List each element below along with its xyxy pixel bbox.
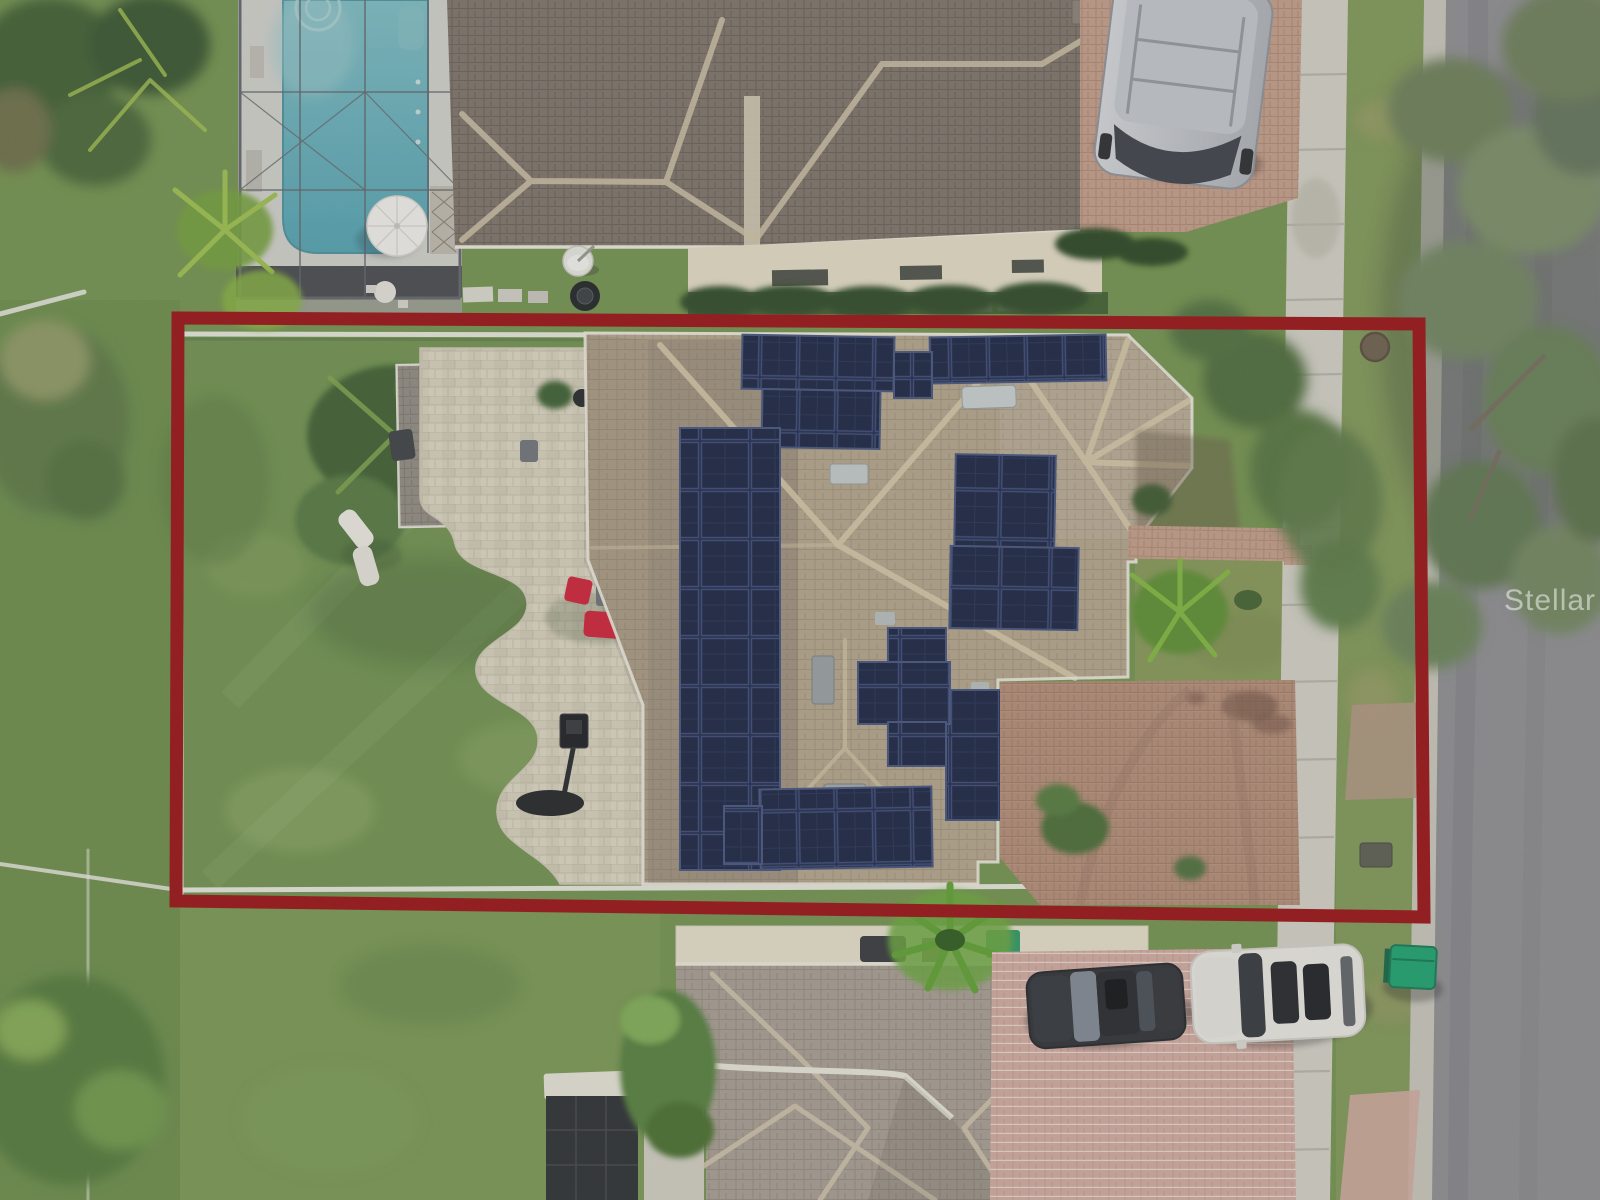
mls-watermark: Stellar MLS	[1504, 584, 1600, 617]
grain-light	[0, 0, 1600, 1200]
aerial-listing-photo: Stellar MLS	[0, 0, 1600, 1200]
aerial-scene: Stellar MLS	[0, 0, 1600, 1200]
